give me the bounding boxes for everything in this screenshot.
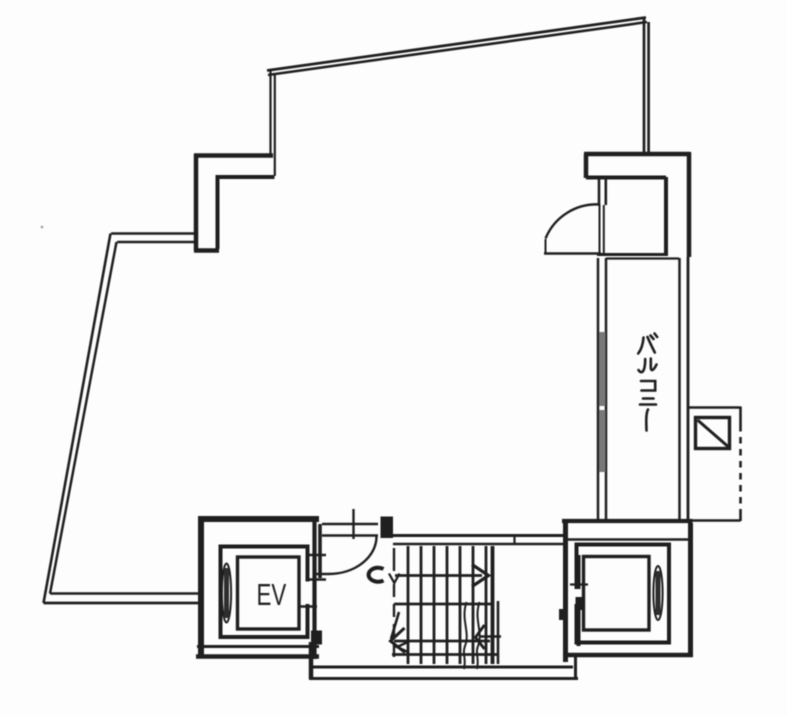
svg-text:EV: EV (257, 577, 287, 611)
